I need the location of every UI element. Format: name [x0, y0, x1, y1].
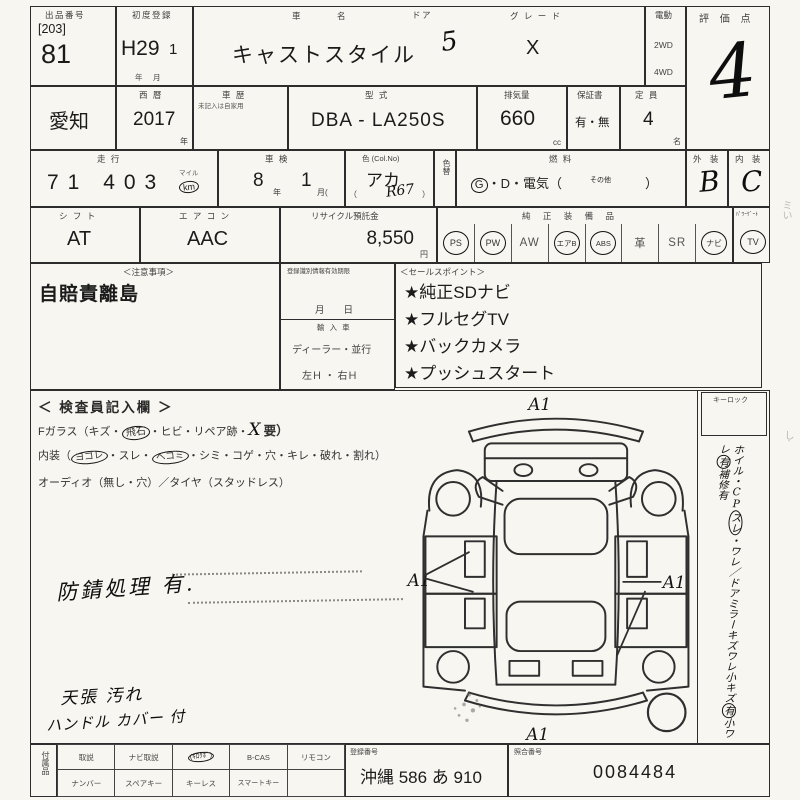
- registration-number-label: 登録番号: [350, 747, 378, 757]
- equipment-cell: 純 正 装 備 品 PS PW AW エアB ABS 革 SR ナビ: [437, 207, 733, 263]
- mileage-value: 71 403: [47, 171, 165, 195]
- color-code: R67: [385, 181, 415, 200]
- shift-cell: シ フ ト AT: [30, 207, 140, 263]
- drive-label: 電動: [655, 9, 672, 21]
- recycle-value: 8,550: [366, 228, 414, 250]
- displacement-value: 660: [500, 107, 535, 131]
- aircon-label: エ ア コ ン: [179, 210, 231, 222]
- damage-mark-rear: A1: [524, 724, 549, 744]
- year-value: 2017: [133, 109, 175, 131]
- glass-stone-chip-circled: 飛石: [121, 425, 150, 441]
- grade-value: X: [526, 37, 539, 60]
- glass-condition-line: Fガラス（キズ・飛石・ヒビ・リペア跡・X 要）: [38, 420, 289, 440]
- equip-navi: ナビ: [695, 224, 732, 262]
- score-value: 4: [705, 27, 761, 117]
- equip-leather: 革: [621, 224, 658, 262]
- exterior-grade: B: [698, 164, 721, 199]
- inspection-year-unit: 年: [273, 187, 281, 198]
- displacement-unit: cc: [553, 138, 561, 147]
- auction-no-bracket: [203]: [38, 22, 66, 36]
- score-cell: 評 価 点 4: [686, 6, 770, 150]
- interior-grade: C: [740, 164, 764, 198]
- reference-number-cell: 照合番号 0084484: [508, 744, 770, 797]
- first-reg-year: H29: [121, 37, 160, 61]
- inspection-cell: 車 検 8 年 1 月(: [218, 150, 345, 207]
- glass-x-mark: X: [249, 420, 261, 440]
- color-change-cell: 色替: [434, 150, 456, 207]
- accessories-label: 付属品: [40, 751, 51, 775]
- model-value: DBA - LA250S: [311, 110, 446, 132]
- drive-type-cell: 電動 2WD 4WD: [645, 6, 686, 86]
- year-cell: 西 暦 2017 年: [116, 86, 193, 150]
- sales-point-1: ★純正SDナビ: [404, 278, 511, 303]
- reference-number: 0084484: [593, 762, 677, 783]
- acc-smart-key: スマートキー: [230, 770, 287, 797]
- auction-no-cell: 出品番号 [203] 81: [30, 6, 116, 86]
- sales-point-2: ★フルセグTV: [404, 305, 509, 330]
- regid-date: 月 日: [315, 302, 353, 316]
- keylock-label: キーロック: [713, 395, 748, 405]
- registration-number-cell: 登録番号 沖縄 586 あ 910: [345, 744, 508, 797]
- registration-number: 沖縄 586 あ 910: [360, 763, 482, 788]
- shift-label: シ フ ト: [59, 210, 97, 222]
- scan-noise-mark: し｀: [780, 430, 795, 450]
- year-unit: 年: [180, 136, 188, 147]
- model-cell: 型 式 DBA - LA250S: [288, 86, 477, 150]
- acc-spare-key: スペアキー: [115, 770, 172, 797]
- sales-point-4: ★プッシュスタート: [404, 359, 555, 384]
- acc-keyless: キーレス: [173, 770, 230, 797]
- acc-bcas: B-CAS: [230, 744, 287, 770]
- sidebar-scuff-circled: スレ: [728, 510, 743, 535]
- damage-mark-front: A1: [526, 394, 551, 414]
- equipment-label: 純 正 装 備 品: [522, 210, 619, 222]
- equip-abs: ABS: [585, 224, 622, 262]
- warranty-value: 有・無: [575, 114, 610, 130]
- first-registration-cell: 初度登録 H29 1 年 月: [116, 6, 193, 86]
- history-note: 未記入は自家用: [198, 100, 244, 110]
- acc-empty: [288, 770, 345, 797]
- interior-dent-circled: ヘコミ: [151, 449, 189, 466]
- color-label: 色 (Col.No): [362, 153, 400, 164]
- warranty-cell: 保証書 有・無: [567, 86, 620, 150]
- stamp-circle: [648, 694, 686, 732]
- aircon-value: AAC: [187, 228, 228, 251]
- accessories-table: 取説 ナビ取説 (ｷﾛｸﾎﾞ) B-CAS リモコン ナンバー スペアキー キー…: [57, 744, 345, 797]
- import-label: 輸 入 車: [317, 322, 351, 333]
- cautions-cell: ＜注意事項＞ 自賠責離島: [30, 263, 280, 390]
- sales-point-3: ★バックカメラ: [404, 332, 521, 357]
- warranty-label: 保証書: [577, 89, 603, 101]
- regid-label: 登録識別情報有効期限: [287, 266, 350, 275]
- keylock-cell: キーロック: [701, 392, 767, 436]
- car-name-label: 車 名: [292, 10, 360, 22]
- sidebar-yes2-circled: 有: [716, 454, 731, 469]
- sales-points-cell: ＜セールスポイント＞ ★純正SDナビ ★フルセグTV ★バックカメラ ★プッシュ…: [395, 263, 762, 388]
- model-label: 型 式: [365, 89, 389, 101]
- history-cell: 車 歴 未記入は自家用: [193, 86, 288, 150]
- acc-remote: リモコン: [288, 744, 345, 770]
- exterior-grade-cell: 外 装 B: [686, 150, 728, 207]
- cautions-text: 自賠責離島: [39, 279, 139, 306]
- audio-tire-line: オーディオ（無し・穴）／タイヤ（スタッドレス）: [38, 474, 290, 490]
- damage-mark-right: A1: [661, 572, 686, 592]
- inspection-month-unit: 月(: [317, 187, 328, 198]
- handle-position: 左Ｈ ・ 右Ｈ: [302, 367, 358, 382]
- mileage-label: 走 行: [97, 153, 121, 165]
- equip-sunroof: SR: [658, 224, 695, 262]
- mileage-cell: 走 行 71 403 マイル km: [30, 150, 218, 207]
- door-label: ドア: [412, 9, 432, 21]
- auction-no: 81: [41, 39, 71, 70]
- interior-grade-cell: 内 装 C: [728, 150, 770, 207]
- fuel-gasoline: G: [470, 177, 488, 193]
- acc-number-plate: ナンバー: [57, 770, 115, 797]
- door-value: 5: [439, 26, 460, 58]
- recycle-label: リサイクル預託金: [311, 210, 379, 222]
- acc-navi-manual: ナビ取説: [115, 744, 172, 770]
- car-name-cell: 車 名 ドア グ レ ー ド キャストスタイル 5 X: [193, 6, 645, 86]
- capacity-value: 4: [643, 109, 654, 131]
- accessories-label-cell: 付属品: [30, 744, 57, 797]
- drive-2wd: 2WD: [654, 40, 673, 50]
- acc-manual: 取説: [57, 744, 115, 770]
- first-reg-label: 初度登録: [132, 9, 172, 21]
- capacity-unit: 名: [673, 136, 681, 147]
- drive-4wd: 4WD: [654, 67, 673, 77]
- equipment-row: PS PW AW エアB ABS 革 SR ナビ: [438, 224, 732, 262]
- color-change-label: 色替: [441, 159, 452, 175]
- displacement-cell: 排気量 660 cc: [477, 86, 567, 150]
- recycle-unit: 円: [420, 249, 428, 260]
- prefecture-cell: 愛知: [30, 86, 116, 150]
- sidebar-yes1-circled: 有: [722, 703, 737, 718]
- fuel-options: ・D・電気（: [488, 176, 562, 191]
- equipment-tv-cell: ﾊﾟﾜｰｹﾞｰﾄ TV: [733, 207, 770, 263]
- equip-pw: PW: [474, 224, 511, 262]
- equip-ps: PS: [438, 224, 474, 262]
- aircon-cell: エ ア コ ン AAC: [140, 207, 280, 263]
- registration-id-cell: 登録識別情報有効期限 月 日 輸 入 車 ディーラー・並行 左Ｈ ・ 右Ｈ: [280, 263, 395, 390]
- car-name: キャストスタイル: [232, 39, 416, 69]
- first-reg-month: 1: [169, 41, 177, 58]
- grade-label: グ レ ー ド: [510, 10, 562, 22]
- inspection-year: 8: [253, 170, 264, 192]
- year-label: 西 暦: [139, 89, 163, 101]
- equip-aw: AW: [511, 224, 548, 262]
- color-paren-open: （: [349, 189, 357, 200]
- car-damage-diagram: A1 A1 A1 A1: [406, 392, 698, 744]
- shift-value: AT: [67, 228, 91, 251]
- fuel-label: 燃 料: [549, 153, 573, 165]
- equip-tv: TV: [740, 230, 766, 254]
- fuel-other: その他: [562, 177, 645, 184]
- capacity-label: 定 員: [635, 89, 659, 101]
- inspector-title: ＜ 検査員記入欄 ＞: [38, 396, 174, 416]
- tv-column-label: ﾊﾟﾜｰｹﾞｰﾄ: [736, 210, 758, 218]
- color-paren-close: ）: [422, 189, 430, 200]
- first-reg-units: 年 月: [135, 72, 162, 83]
- capacity-cell: 定 員 4 名: [620, 86, 686, 150]
- equip-airbag: エアB: [548, 224, 585, 262]
- color-cell: 色 (Col.No) アカ （ R67 ）: [345, 150, 434, 207]
- mileage-unit-km: km: [178, 180, 199, 194]
- inspection-label: 車 検: [265, 153, 289, 165]
- cautions-label: ＜注意事項＞: [123, 266, 174, 278]
- recycle-fee-cell: リサイクル預託金 8,550 円: [280, 207, 437, 263]
- note-headliner: 天張 汚れ: [59, 680, 144, 709]
- mileage-unit-mile: マイル: [179, 167, 199, 177]
- fuel-cell: 燃 料 G・D・電気（その他）: [456, 150, 686, 207]
- inspection-month: 1: [301, 170, 312, 192]
- reference-number-label: 照合番号: [514, 747, 542, 757]
- prefecture: 愛知: [49, 105, 89, 134]
- displacement-label: 排気量: [504, 89, 530, 101]
- score-label: 評 価 点: [699, 10, 755, 25]
- auction-no-label: 出品番号: [45, 9, 85, 21]
- import-type: ディーラー・並行: [292, 341, 371, 356]
- damage-mark-left: A1: [406, 570, 430, 590]
- interior-label: 内 装: [735, 153, 763, 165]
- interior-dirt-circled: ヨゴレ: [70, 449, 108, 466]
- acc-service-record: (ｷﾛｸﾎﾞ): [173, 744, 230, 770]
- scan-noise-mark: ミい: [778, 200, 793, 220]
- fuel-paren-close: ）: [645, 176, 658, 191]
- interior-condition-line: 内装（ヨゴレ・スレ・ヘコミ・シミ・コゲ・穴・キレ・破れ・割れ）: [38, 447, 386, 464]
- auction-sheet: 出品番号 [203] 81 初度登録 H29 1 年 月 車 名 ドア グ レ …: [0, 0, 800, 800]
- sales-points-label: ＜セールスポイント＞: [400, 266, 485, 278]
